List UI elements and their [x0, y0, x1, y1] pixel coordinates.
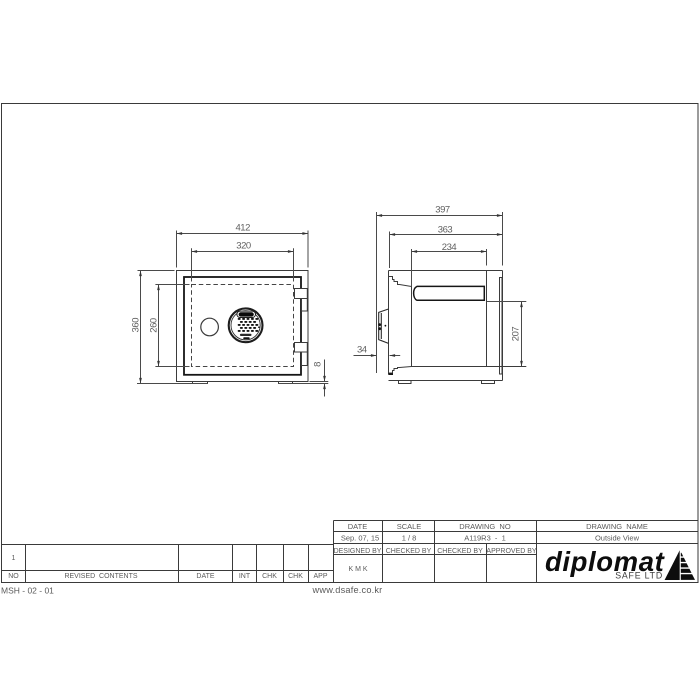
- svg-text:320: 320: [236, 240, 251, 251]
- svg-text:234: 234: [442, 242, 457, 253]
- svg-text:CHECKED BY: CHECKED BY: [386, 548, 432, 555]
- svg-text:INT: INT: [239, 573, 251, 580]
- svg-text:MSH - 02 - 01: MSH - 02 - 01: [1, 586, 54, 596]
- svg-text:CHECKED BY: CHECKED BY: [437, 548, 483, 555]
- svg-text:DATE: DATE: [348, 522, 367, 531]
- svg-text:207: 207: [510, 327, 521, 342]
- svg-text:DATE: DATE: [196, 573, 214, 580]
- svg-text:A119R3 - 1: A119R3 - 1: [464, 534, 506, 543]
- svg-text:DESIGNED BY: DESIGNED BY: [334, 548, 382, 555]
- svg-text:1: 1: [12, 555, 16, 562]
- svg-text:DRAWING NAME: DRAWING NAME: [586, 522, 648, 531]
- svg-text:412: 412: [235, 223, 250, 234]
- svg-text:Outside View: Outside View: [595, 534, 640, 543]
- svg-text:Sep. 07, 15: Sep. 07, 15: [341, 534, 379, 543]
- svg-text:34: 34: [357, 344, 367, 355]
- svg-text:SCALE: SCALE: [397, 522, 422, 531]
- svg-text:CHK: CHK: [262, 573, 277, 580]
- svg-text:REVISED CONTENTS: REVISED CONTENTS: [64, 573, 137, 580]
- svg-text:DRAWING NO: DRAWING NO: [459, 522, 511, 531]
- svg-text:1 / 8: 1 / 8: [402, 534, 417, 543]
- svg-text:SAFE LTD: SAFE LTD: [615, 571, 663, 581]
- svg-text:8: 8: [313, 362, 324, 367]
- svg-text:www.dsafe.co.kr: www.dsafe.co.kr: [312, 585, 383, 595]
- svg-text:NO: NO: [8, 573, 19, 580]
- svg-text:K M K: K M K: [348, 566, 367, 573]
- svg-text:APPROVED BY: APPROVED BY: [486, 548, 537, 555]
- svg-text:363: 363: [438, 224, 453, 235]
- svg-text:360: 360: [130, 318, 141, 333]
- svg-text:CHK: CHK: [288, 573, 303, 580]
- svg-text:397: 397: [435, 204, 450, 215]
- svg-text:APP: APP: [313, 573, 327, 580]
- svg-text:260: 260: [148, 318, 159, 333]
